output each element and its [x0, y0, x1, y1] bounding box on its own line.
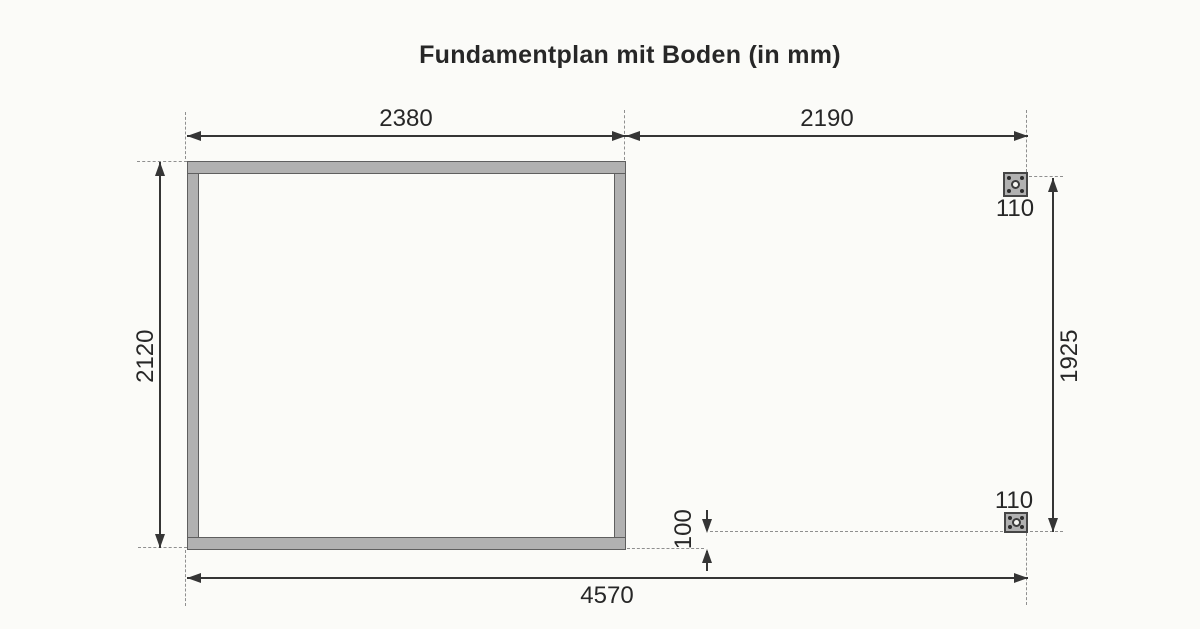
screw-dot-icon	[1007, 189, 1011, 193]
screw-dot-icon	[1020, 189, 1024, 193]
dim-line-floor-depth	[159, 162, 161, 548]
dim-label-post-plate-top: 110	[985, 196, 1045, 222]
screw-dot-icon	[1008, 516, 1012, 520]
dim-line-total-width	[187, 577, 1028, 579]
dim-arrow	[626, 131, 640, 141]
dim-arrow	[612, 131, 626, 141]
dim-label-total-width: 4570	[547, 583, 667, 609]
screw-dot-icon	[1020, 516, 1024, 520]
floor-frame-bottom-bar	[187, 537, 626, 550]
extension-line-left-bottom	[185, 550, 186, 606]
screw-dot-icon	[1020, 525, 1024, 529]
dim-arrow	[155, 162, 165, 176]
anchor-hole-icon	[1011, 180, 1020, 189]
dim-arrow	[187, 131, 201, 141]
floor-frame-right-bar	[614, 173, 626, 538]
extension-line-top-anchor-horizontal	[1029, 176, 1063, 177]
screw-dot-icon	[1020, 176, 1024, 180]
dim-arrow	[187, 573, 201, 583]
dim-label-floor-width: 2380	[346, 106, 466, 132]
dim-arrow	[1048, 178, 1058, 192]
post-anchor-plate-bottom	[1004, 512, 1028, 533]
dim-arrow	[702, 549, 712, 563]
extension-line-right-bottom	[1026, 533, 1027, 605]
dim-label-post-offset: 100	[671, 489, 697, 569]
dim-label-floor-depth: 2120	[133, 296, 159, 416]
dim-arrow	[155, 534, 165, 548]
dim-arrow	[702, 519, 712, 533]
dim-arrow	[1014, 573, 1028, 583]
anchor-hole-icon	[1012, 518, 1021, 527]
dim-line-post-span	[1052, 178, 1054, 532]
foundation-plan-diagram: Fundamentplan mit Boden (in mm) 2380 219…	[0, 0, 1200, 629]
dim-label-right-extension: 2190	[767, 106, 887, 132]
screw-dot-icon	[1007, 176, 1011, 180]
dim-label-post-plate-bottom: 110	[984, 488, 1044, 514]
dim-arrow	[1014, 131, 1028, 141]
post-anchor-plate-top	[1003, 172, 1028, 197]
floor-frame-top-bar	[187, 161, 626, 174]
dim-line-right-extension	[626, 135, 1028, 137]
extension-line-left-top	[185, 112, 186, 159]
screw-dot-icon	[1008, 525, 1012, 529]
dim-arrow	[1048, 518, 1058, 532]
floor-frame-left-bar	[187, 173, 199, 538]
dim-label-post-span: 1925	[1057, 296, 1083, 416]
extension-line-right-top	[1026, 110, 1027, 172]
dim-line-floor-width	[187, 135, 626, 137]
diagram-title: Fundamentplan mit Boden (in mm)	[30, 41, 1200, 70]
